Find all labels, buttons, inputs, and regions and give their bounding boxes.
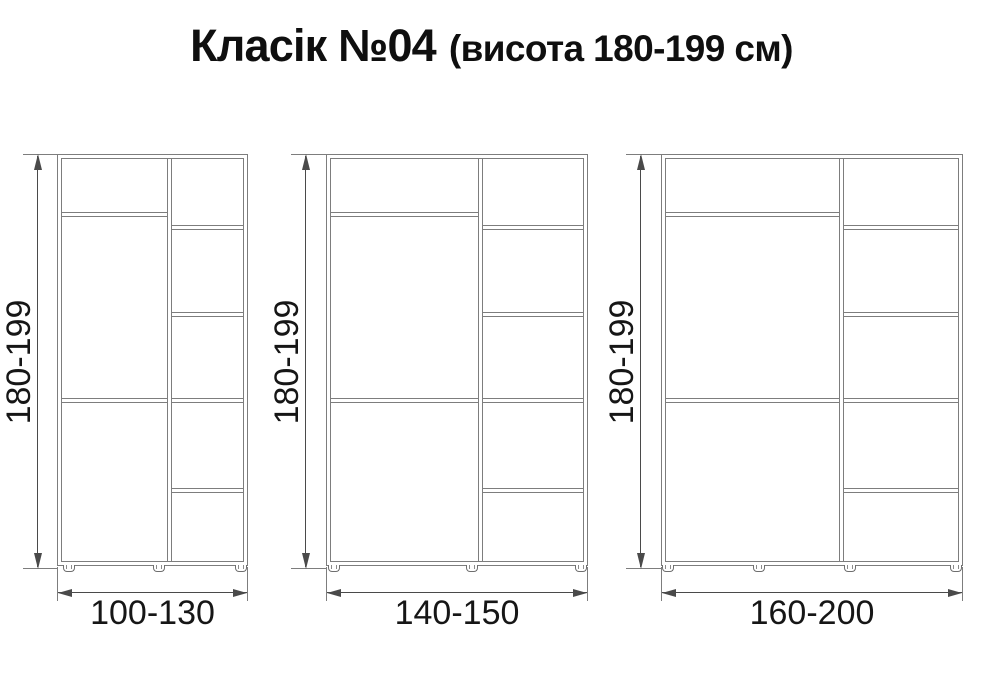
wardrobe-drawings: 180-199100-130180-199140-150180-199160-2… (0, 0, 983, 700)
shelf-right-1 (843, 225, 959, 230)
width-dimension-line (662, 592, 962, 593)
height-dim-arrow-up (637, 154, 645, 170)
cabinet-foot-3 (844, 565, 856, 572)
shelf-right-4 (843, 488, 959, 493)
cabinet-inner-outline (665, 158, 959, 562)
height-dim-arrow-down (637, 553, 645, 569)
shelf-left-2 (665, 398, 840, 403)
height-label: 180-199 (603, 282, 641, 442)
cabinet-foot-1 (662, 565, 674, 572)
diagram-canvas: Класік №04 (висота 180-199 см) 180-19910… (0, 0, 983, 700)
cabinet-foot-4 (950, 565, 962, 572)
center-divider (839, 158, 844, 562)
width-label: 160-200 (661, 594, 963, 632)
shelf-left-1 (665, 212, 840, 217)
cabinet-foot-2 (753, 565, 765, 572)
shelf-right-3 (843, 398, 959, 403)
shelf-right-2 (843, 312, 959, 317)
wardrobe-3: 180-199160-200 (0, 0, 983, 700)
